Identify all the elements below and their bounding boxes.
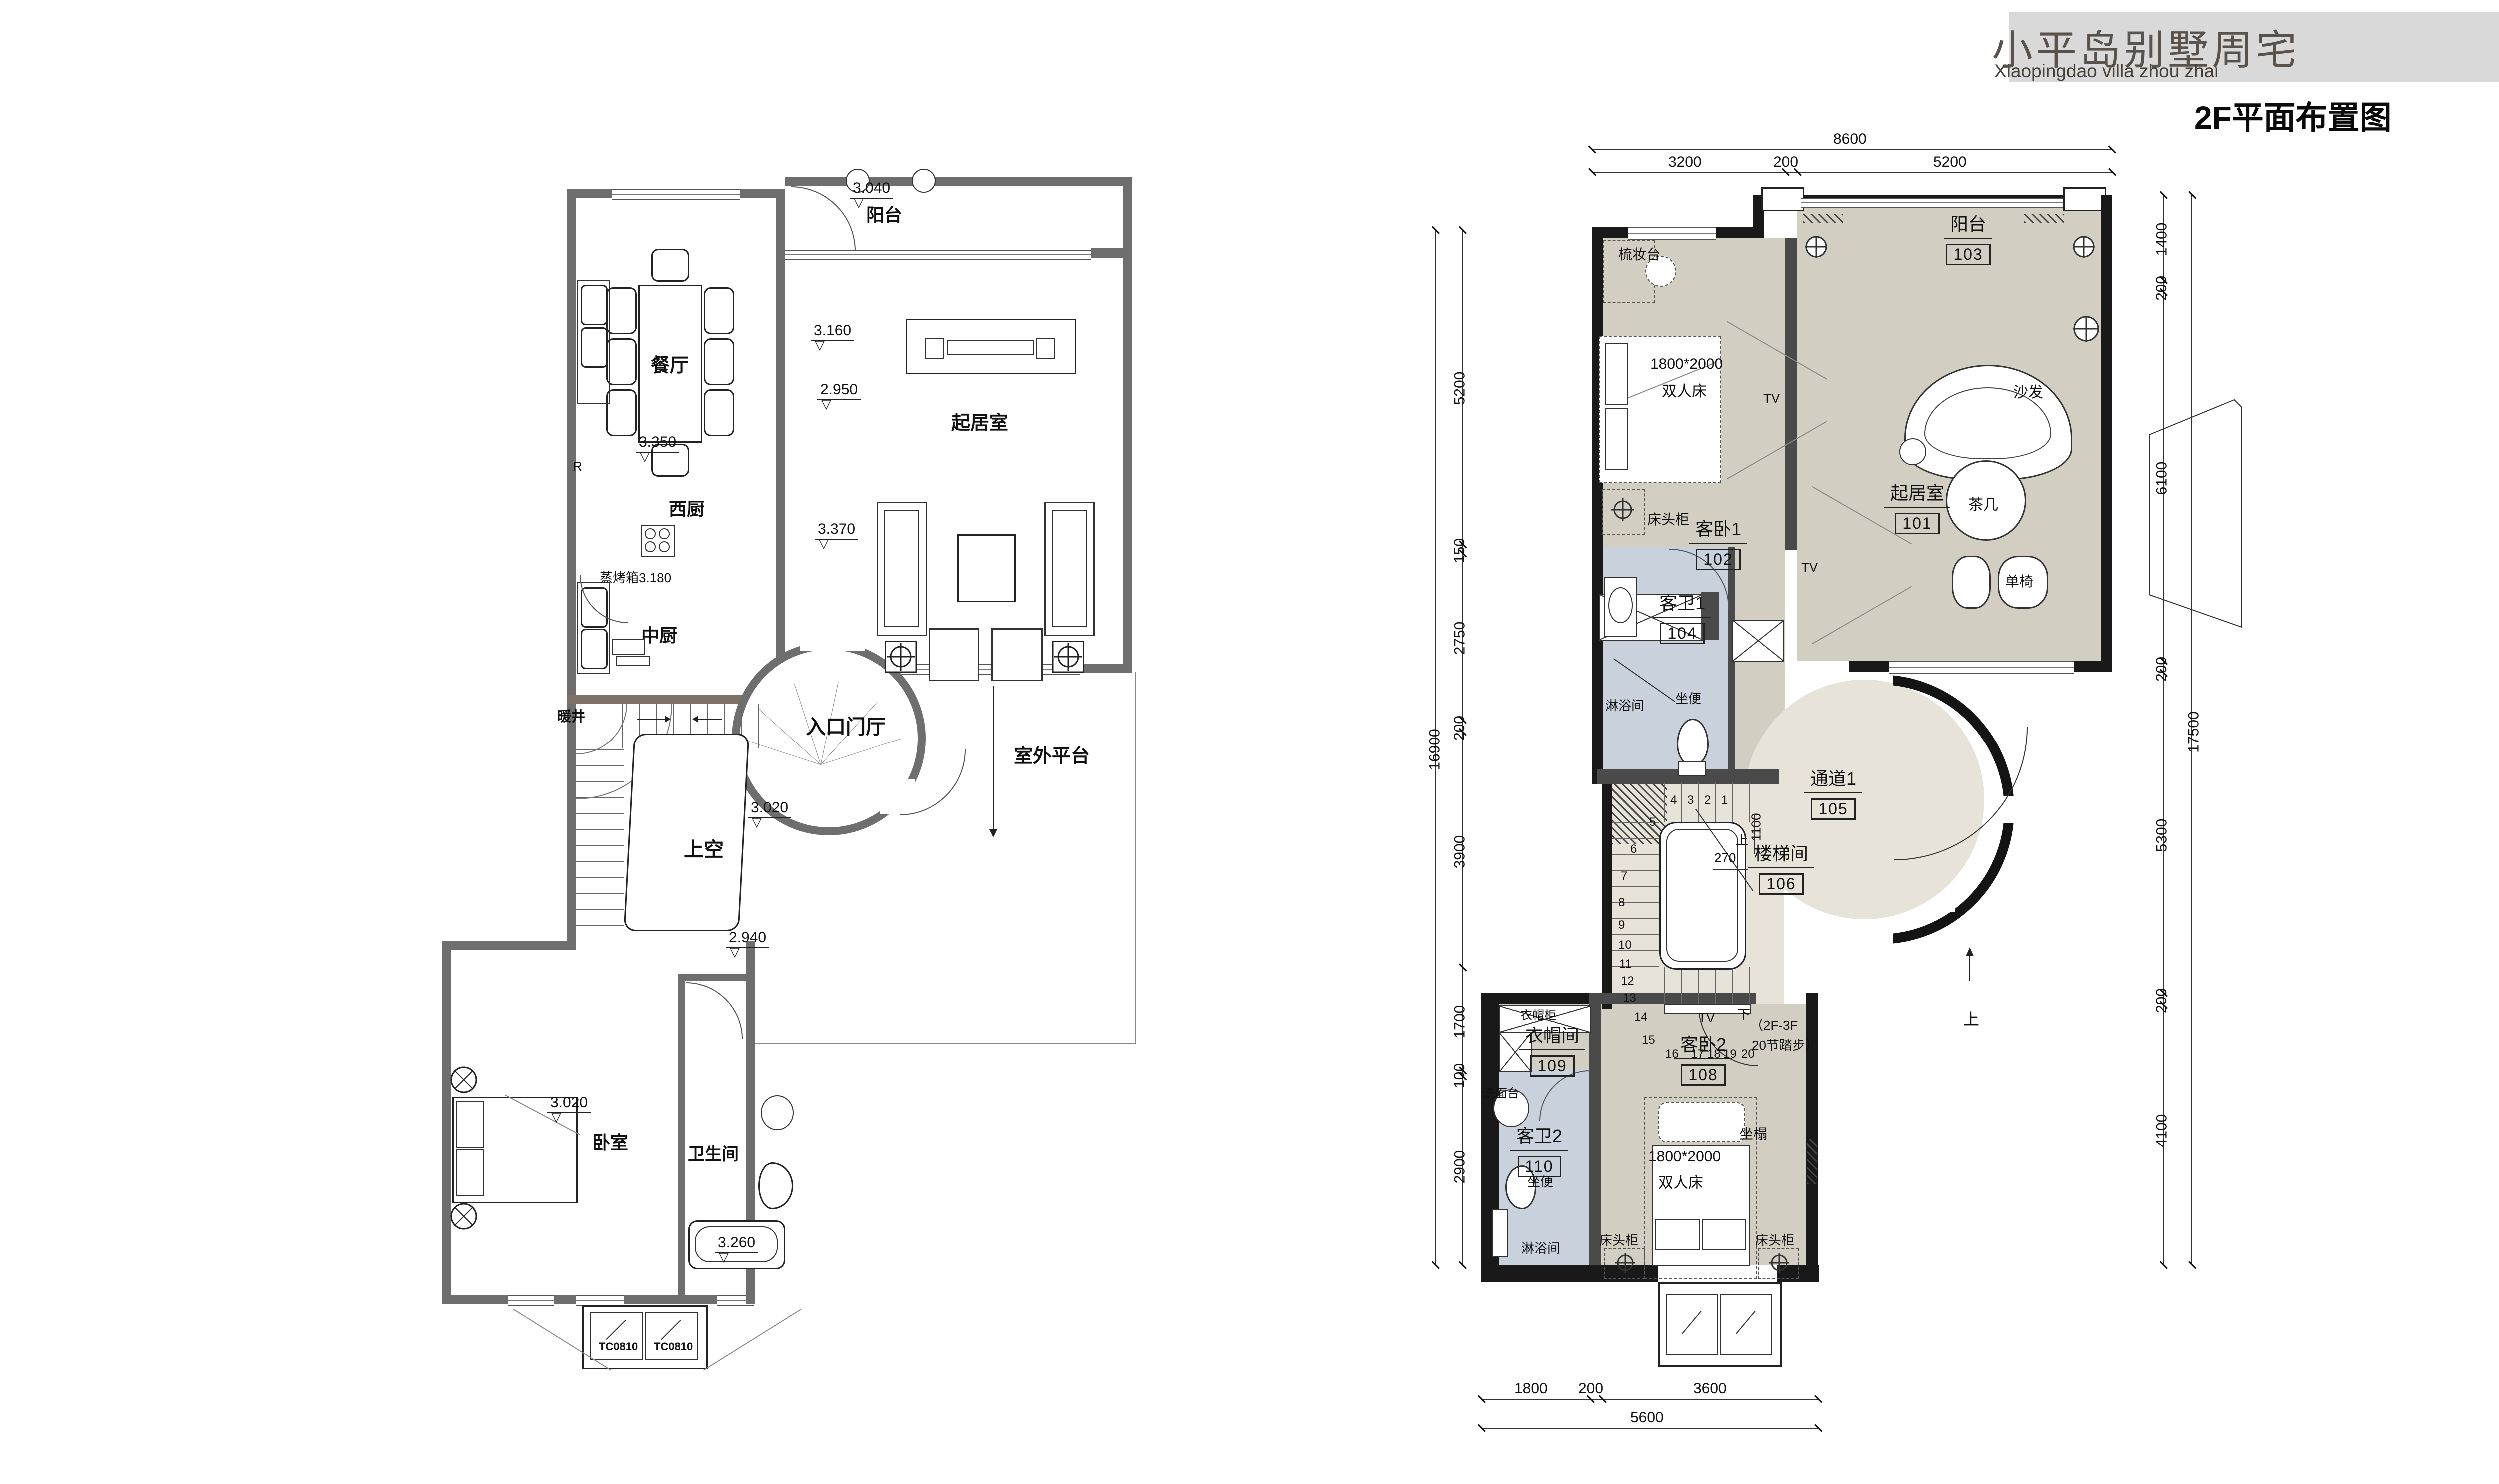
- dim-line-bottom-total: [1481, 1428, 1818, 1429]
- stair-num: 18: [1707, 1047, 1721, 1061]
- label-bench: 坐榻: [1739, 1123, 1767, 1143]
- window-tag-tc0810-1: TC0810: [599, 1340, 638, 1353]
- lp-burner: [645, 541, 656, 552]
- dim-top-seg: 3200: [1668, 154, 1702, 171]
- rp-window-pane: [1666, 1294, 1718, 1355]
- rp-bed1-pillow: [1605, 343, 1628, 405]
- lp-sofa-left-cushion: [884, 510, 919, 627]
- rp-bath1-sink-icon: [1608, 587, 1633, 623]
- lp-wall-stair-left: [567, 704, 576, 942]
- lp-stair-arrow-head: [689, 716, 698, 723]
- dim-line-top-total: [1592, 149, 2112, 150]
- lp-wall-balcony-top: [785, 177, 1132, 186]
- dim-right-seg: 6100: [2153, 462, 2170, 495]
- rp-bed2-pillow: [1702, 1219, 1746, 1250]
- room-name: 楼梯间: [1748, 839, 1814, 868]
- elev-living: 3.370: [815, 521, 858, 540]
- lp-pillow: [456, 1101, 484, 1148]
- room-number: 108: [1681, 1064, 1725, 1086]
- label-shower1: 淋浴间: [1605, 696, 1644, 714]
- room-name: 衣帽间: [1519, 1021, 1585, 1050]
- lp-turret-opening-top: [800, 636, 865, 651]
- room-label-void: 上空: [684, 833, 724, 862]
- dim-right-total: 17500: [2186, 711, 2203, 752]
- room-name: 通道1: [1804, 764, 1862, 793]
- dim-left-total: 16900: [1427, 729, 1444, 770]
- dim-top-total: 8600: [1833, 131, 1867, 148]
- lp-chair: [606, 338, 637, 385]
- rp-bath1-toilet-tank: [1678, 761, 1706, 776]
- dim-bottom-seg: 1800: [1514, 1380, 1548, 1397]
- dim-top-seg: 200: [1773, 154, 1798, 171]
- room-tag-living: 起居室 101: [1884, 479, 1950, 534]
- lp-sofa-right-cushion: [1052, 510, 1087, 627]
- rp-bath2-shower-fixture: [1492, 1209, 1508, 1257]
- rp-hall-cabinet: [1732, 620, 1784, 662]
- rp-terrace-outline: [2139, 395, 2249, 635]
- room-tag-bed1: 客卧1 102: [1689, 515, 1747, 570]
- room-label-balcony: 阳台: [866, 201, 902, 227]
- dim-right-seg: 200: [2153, 276, 2170, 301]
- lp-stair-arrow-line: [637, 719, 665, 720]
- rp-up-label: 上: [1963, 1007, 1979, 1030]
- window-tag-tc0810-2: TC0810: [654, 1340, 693, 1353]
- stair-num: 15: [1642, 1033, 1655, 1047]
- label-bed1-size: 1800*2000: [1650, 356, 1723, 373]
- room-label-entry-hall: 入口门厅: [806, 711, 886, 740]
- lp-stair-arrow-line: [695, 719, 722, 720]
- dim-right-seg: 4100: [2153, 1114, 2170, 1148]
- room-name: 客卫1: [1653, 589, 1711, 618]
- dim-right-seg: 1400: [2153, 223, 2170, 256]
- label-bed1-type: 双人床: [1662, 379, 1707, 401]
- label-wardrobe-cabinet: 衣帽柜: [1520, 1005, 1556, 1023]
- room-tag-bath2: 客卫2 110: [1510, 1122, 1568, 1177]
- elev-dining-2: 2.950: [817, 381, 861, 400]
- lp-armchair: [929, 628, 979, 681]
- room-tag-stairwell: 楼梯间 106: [1748, 839, 1814, 895]
- dim-left-seg: 2900: [1451, 1150, 1468, 1184]
- rp-balcony-pier-1: [1761, 187, 1804, 211]
- room-label-shaft: 暖井: [557, 706, 585, 726]
- lp-floor-lamp-icon: [885, 641, 917, 673]
- drawing-title: 2F平面布置图: [2194, 92, 2392, 138]
- rp-lamp-icon: [1610, 497, 1635, 522]
- lp-bay-splay: [703, 1309, 801, 1371]
- rp-wall-stair-left: [1602, 784, 1612, 1009]
- dim-left-seg: 100: [1451, 1063, 1468, 1088]
- label-nightstand-left: 床头柜: [1599, 1230, 1638, 1249]
- label-nightstand-right: 床头柜: [1755, 1230, 1794, 1249]
- room-name: 阳台: [1944, 210, 1992, 239]
- elev-entry: 3.020: [748, 799, 791, 818]
- stair-num: 12: [1621, 974, 1634, 988]
- stair-num: 6: [1630, 842, 1637, 856]
- dim-left-seg: 150: [1451, 538, 1468, 563]
- dim-bottom-seg: 200: [1578, 1380, 1603, 1397]
- lp-burner: [659, 541, 670, 552]
- stair-num: 17: [1691, 1047, 1704, 1061]
- stair-note-2: 20节踏步）: [1752, 1035, 1818, 1054]
- room-tag-bath1: 客卫1 104: [1653, 589, 1711, 644]
- rp-terrace-line: [1829, 981, 2459, 981]
- stair-num: 8: [1618, 896, 1625, 910]
- stair-num: 7: [1621, 869, 1627, 883]
- lp-chair: [606, 389, 637, 436]
- rp-lamp-icon: [1768, 1252, 1790, 1274]
- rp-armchair: [1952, 556, 1991, 609]
- dim-line: [1713, 869, 1748, 870]
- room-number: 104: [1660, 623, 1704, 644]
- rp-wall-tv-divider: [1785, 238, 1797, 550]
- dim-line-right-segs: [2163, 195, 2164, 1265]
- label-washstand: 洗面台: [1483, 1083, 1519, 1101]
- rp-stair-bottom-flight: [1664, 967, 1757, 1004]
- lp-stair-void: [624, 734, 750, 931]
- room-number: 106: [1759, 873, 1803, 895]
- label-shower2: 淋浴间: [1521, 1238, 1560, 1257]
- lp-chair: [606, 287, 637, 334]
- lp-wall-bedroom-top: [442, 941, 576, 950]
- lp-appliance: [581, 327, 608, 368]
- lp-down-arrow-head: [989, 829, 997, 841]
- label-nightstand1: 床头柜: [1647, 509, 1689, 529]
- floor-plan-sheet: 小平岛别墅周宅 Xiaopingdao villa zhou zhai 2F平面…: [0, 0, 2499, 1484]
- lp-platform-edge-h: [755, 1043, 1136, 1044]
- dim-right-seg: 200: [2153, 657, 2170, 682]
- dim-bottom-seg: 3600: [1693, 1380, 1727, 1397]
- rp-living-lamp-icon: [2072, 315, 2100, 343]
- lp-platform-edge-v: [1135, 672, 1136, 1044]
- label-bed2-type: 双人床: [1658, 1170, 1703, 1192]
- lp-burner: [645, 528, 656, 539]
- lp-burner: [659, 528, 670, 539]
- lp-floor-lamp-icon: [1052, 641, 1084, 673]
- rp-lamp-icon: [1614, 1252, 1636, 1274]
- rp-window-bed1-top: [1628, 227, 1716, 240]
- lp-speaker: [925, 338, 944, 359]
- elev-west-kitchen: 3.350: [636, 434, 679, 453]
- stair-num: 1: [1721, 793, 1728, 807]
- room-label-outdoor-platform: 室外平台: [1014, 741, 1090, 768]
- lp-sink-icon: [761, 1095, 794, 1130]
- stair-num: 14: [1634, 1010, 1648, 1024]
- label-tv-3: TV: [1698, 1010, 1715, 1026]
- dim-line-top-segs: [1592, 172, 2112, 173]
- rp-hatch-mark: [1807, 1139, 1817, 1184]
- stair-num: 19: [1723, 1047, 1737, 1061]
- lp-wall-dining-left: [567, 189, 576, 704]
- label-bed2-size: 1800*2000: [1648, 1148, 1721, 1165]
- lp-wall-bedroom-left: [442, 941, 451, 1304]
- lp-appliance: [581, 285, 608, 325]
- dim-left-seg: 5200: [1451, 372, 1468, 405]
- room-label-west-kitchen: 西厨: [669, 495, 705, 521]
- label-toilet2: 坐便: [1527, 1172, 1553, 1190]
- rp-wall-right-outer: [2101, 195, 2112, 672]
- lp-pillow: [456, 1149, 484, 1196]
- lp-appliance: [581, 629, 608, 669]
- stair-num: 5: [1649, 815, 1656, 829]
- dim-left-seg: 2750: [1451, 622, 1468, 655]
- stair-num: 13: [1623, 991, 1636, 1005]
- stair-dim-1100: 1100: [1748, 813, 1764, 841]
- label-tea-table: 茶几: [1968, 492, 1998, 514]
- label-sofa: 沙发: [2013, 380, 2043, 402]
- room-label-bedroom: 卧室: [592, 1128, 628, 1154]
- label-single-chair: 单椅: [2005, 571, 2033, 591]
- room-tag-cloak: 衣帽间 109: [1519, 1021, 1585, 1077]
- lp-armchair: [991, 628, 1043, 681]
- label-steam-oven: 蒸烤箱3.180: [600, 568, 671, 586]
- rp-bed1-pillow: [1605, 408, 1628, 470]
- rp-window-pane: [1720, 1294, 1772, 1355]
- lp-tv: [947, 340, 1034, 355]
- elev-landing: 2.940: [726, 929, 769, 948]
- room-tag-balcony: 阳台 103: [1944, 210, 1992, 265]
- room-number: 103: [1946, 244, 1990, 265]
- dim-top-seg: 5200: [1933, 154, 1967, 171]
- label-dressing-table: 梳妆台: [1618, 244, 1660, 264]
- dim-bottom-total: 5600: [1630, 1409, 1664, 1426]
- label-tv-1: TV: [1763, 391, 1780, 406]
- elev-bath: 3.260: [715, 1234, 758, 1253]
- room-label-bathroom: 卫生间: [688, 1140, 739, 1165]
- room-name: 起居室: [1884, 479, 1950, 508]
- lp-chair: [704, 287, 734, 334]
- rp-stair-void-inner: [1666, 829, 1738, 962]
- rp-bath1-toilet-icon: [1677, 719, 1709, 765]
- dim-left-seg: 200: [1451, 716, 1468, 741]
- lp-window-dining-top: [612, 189, 740, 200]
- room-label-chinese-kitchen: 中厨: [641, 621, 677, 647]
- lp-balcony-door-arc: [791, 186, 856, 251]
- label-toilet1: 坐便: [1675, 689, 1701, 707]
- rp-window-balcony-top: [1801, 198, 2063, 208]
- dim-line-bottom-segs: [1481, 1399, 1818, 1400]
- lp-wall-dining-right: [776, 189, 785, 672]
- lp-down-arrow-line: [993, 686, 994, 830]
- lp-chair: [704, 338, 734, 385]
- label-tv-2: TV: [1801, 560, 1818, 575]
- rp-axis-h: [1424, 509, 2229, 509]
- rp-up-arrow-head: [1966, 943, 1974, 956]
- rp-hatch-mark: [1803, 214, 1843, 223]
- dim-left-seg: 1700: [1451, 1005, 1468, 1039]
- room-label-living: 起居室: [951, 407, 1008, 435]
- room-label-dining: 餐厅: [651, 350, 689, 377]
- rp-hatch-mark: [2024, 214, 2064, 223]
- lp-bath-door-arc: [686, 982, 743, 1039]
- dim-right-seg: 200: [2153, 988, 2170, 1013]
- lp-stair-arrow-head: [665, 716, 674, 723]
- lp-fan-icon: [450, 1202, 478, 1230]
- lp-speaker: [1036, 338, 1055, 359]
- stair-num: 11: [1619, 957, 1632, 971]
- lp-gas-stove: [612, 639, 645, 655]
- rp-wall-left-outer-upper: [1592, 227, 1603, 784]
- rp-balcony-lamp-icon: [1804, 235, 1828, 259]
- stair-note-1: （2F-3F: [1750, 1015, 1798, 1034]
- stair-num: 10: [1618, 938, 1632, 952]
- lp-toilet-icon: [758, 1162, 793, 1209]
- room-name: 客卫2: [1510, 1122, 1568, 1151]
- dim-line: [1754, 814, 1755, 854]
- stair-num: 3: [1687, 793, 1694, 807]
- rp-wall-cloak-top: [1481, 993, 1601, 1004]
- rp-side-stool: [1899, 438, 1926, 465]
- column-mark-r: R: [573, 459, 582, 474]
- project-title-en: Xiaopingdao villa zhou zhai: [1994, 61, 2218, 82]
- room-number: 102: [1696, 549, 1740, 570]
- lp-window-living-bottom: [890, 664, 1080, 675]
- rp-bed2-pillow: [1655, 1219, 1700, 1250]
- stair-num: 2: [1704, 793, 1711, 807]
- lp-window-bottom-2: [576, 1295, 624, 1306]
- lp-chair: [704, 389, 734, 436]
- room-name: 客卧1: [1689, 515, 1747, 544]
- stair-dim-270: 270: [1714, 850, 1736, 866]
- lp-wall-bath-divider: [678, 974, 685, 1304]
- rp-window-living-bottom: [1889, 661, 2074, 674]
- lp-wall-bath-top: [678, 974, 747, 981]
- lp-column-2: [912, 169, 936, 193]
- elev-dining-1: 3.160: [811, 322, 854, 341]
- room-tag-passage: 通道1 105: [1804, 764, 1862, 820]
- dim-right-seg: 5300: [2153, 819, 2170, 852]
- elev-balcony: 3.040: [850, 180, 893, 199]
- lp-stove-knobs: [616, 656, 650, 666]
- room-number: 101: [1895, 513, 1939, 534]
- stair-num: 9: [1618, 918, 1625, 932]
- lp-coffee-table: [957, 534, 1016, 602]
- lp-wall-balcony-sill-end: [1091, 248, 1132, 258]
- lp-window-balcony-sill: [785, 250, 1091, 260]
- room-number: 109: [1530, 1055, 1574, 1077]
- stair-down-label: 下: [1737, 1004, 1750, 1023]
- lp-window-bottom-1: [508, 1295, 554, 1306]
- elev-bedroom: 3.020: [547, 1094, 591, 1113]
- stair-num: 16: [1665, 1047, 1679, 1061]
- rp-balcony-pier-2: [2063, 187, 2106, 211]
- dim-left-seg: 3900: [1451, 835, 1468, 869]
- lp-entry-door-arc: [900, 749, 966, 815]
- rp-balcony-lamp-icon: [2072, 235, 2096, 259]
- stair-num: 4: [1670, 793, 1677, 807]
- lp-fan-icon: [450, 1066, 478, 1094]
- lp-chair: [651, 249, 689, 282]
- room-number: 105: [1811, 798, 1855, 820]
- stair-up-label: 上: [1735, 830, 1748, 849]
